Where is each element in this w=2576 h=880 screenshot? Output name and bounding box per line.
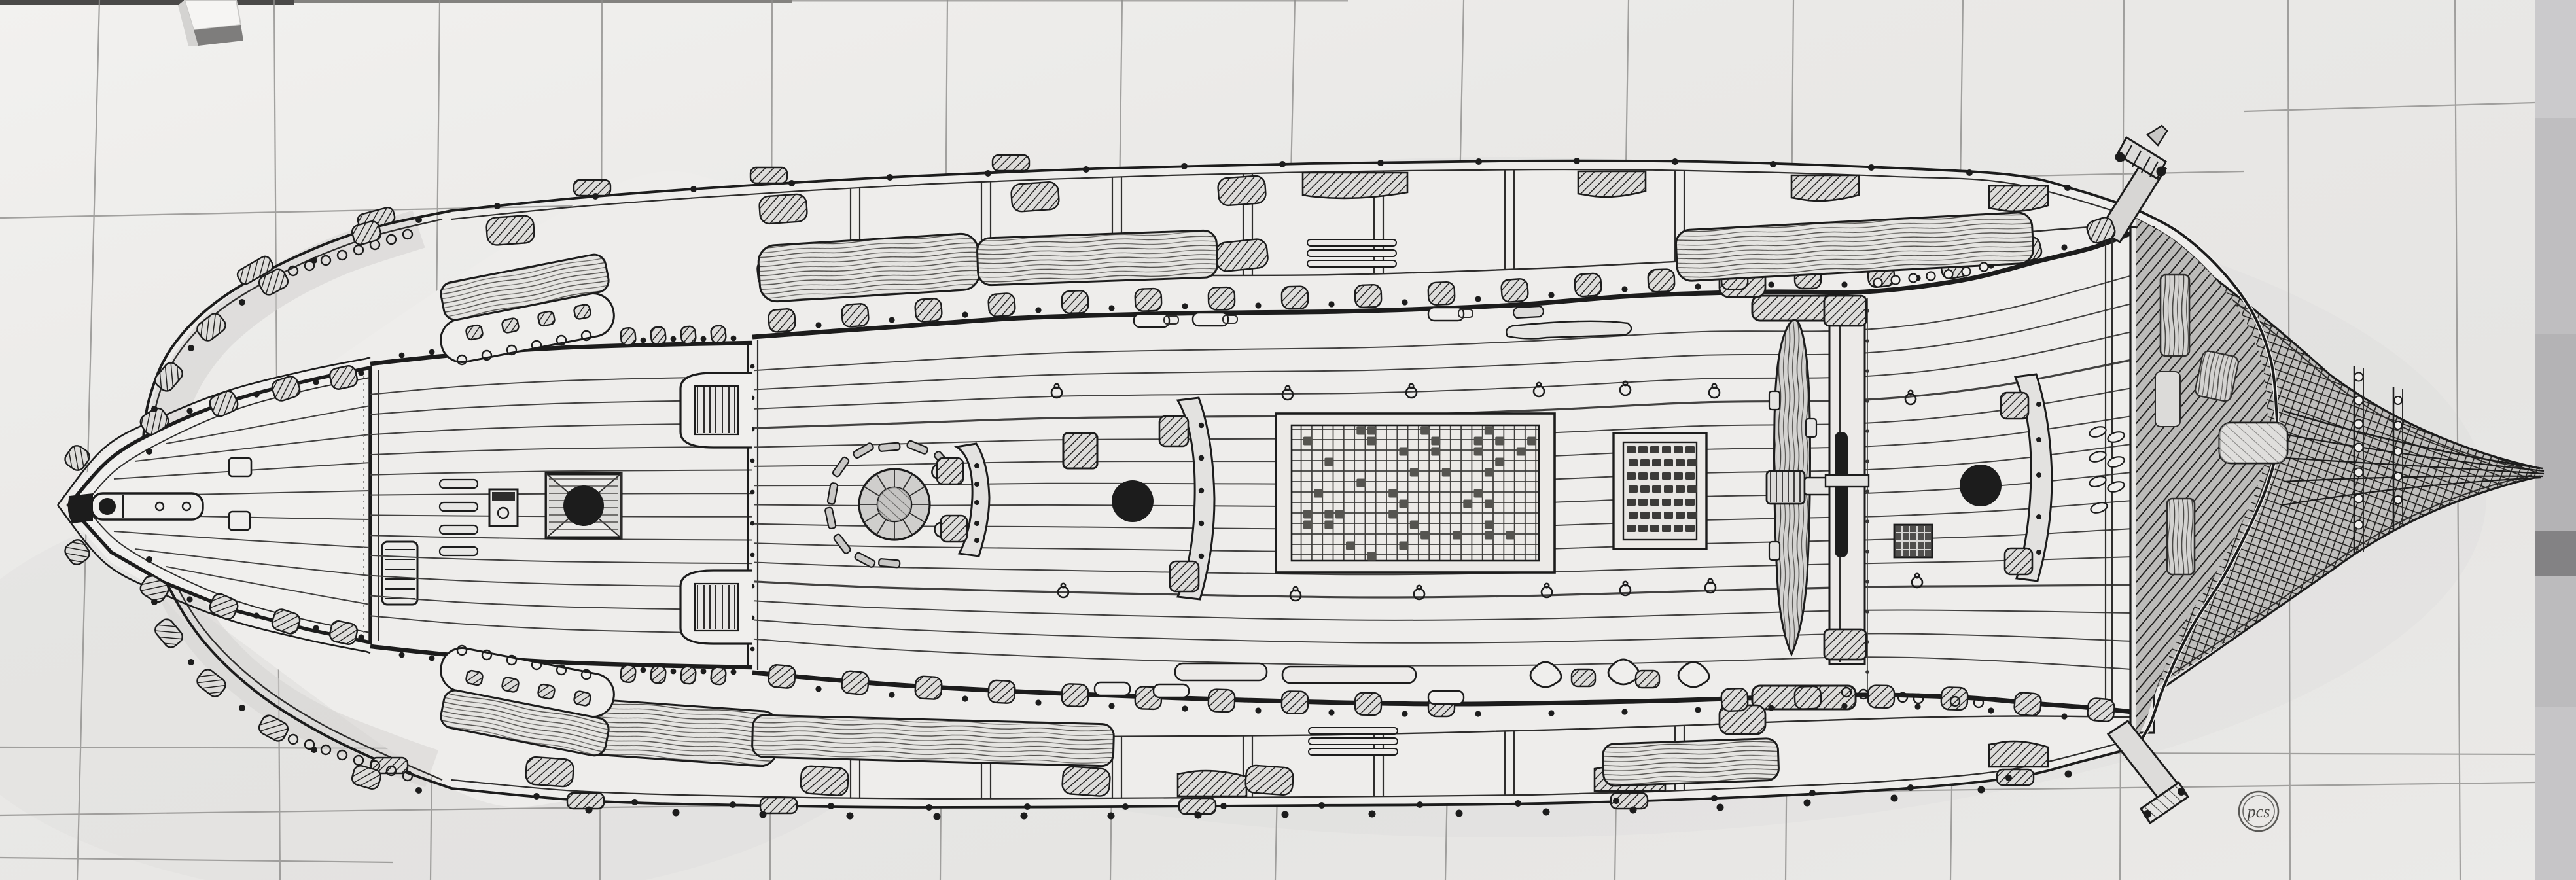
svg-text:pcs: pcs	[2246, 802, 2270, 821]
